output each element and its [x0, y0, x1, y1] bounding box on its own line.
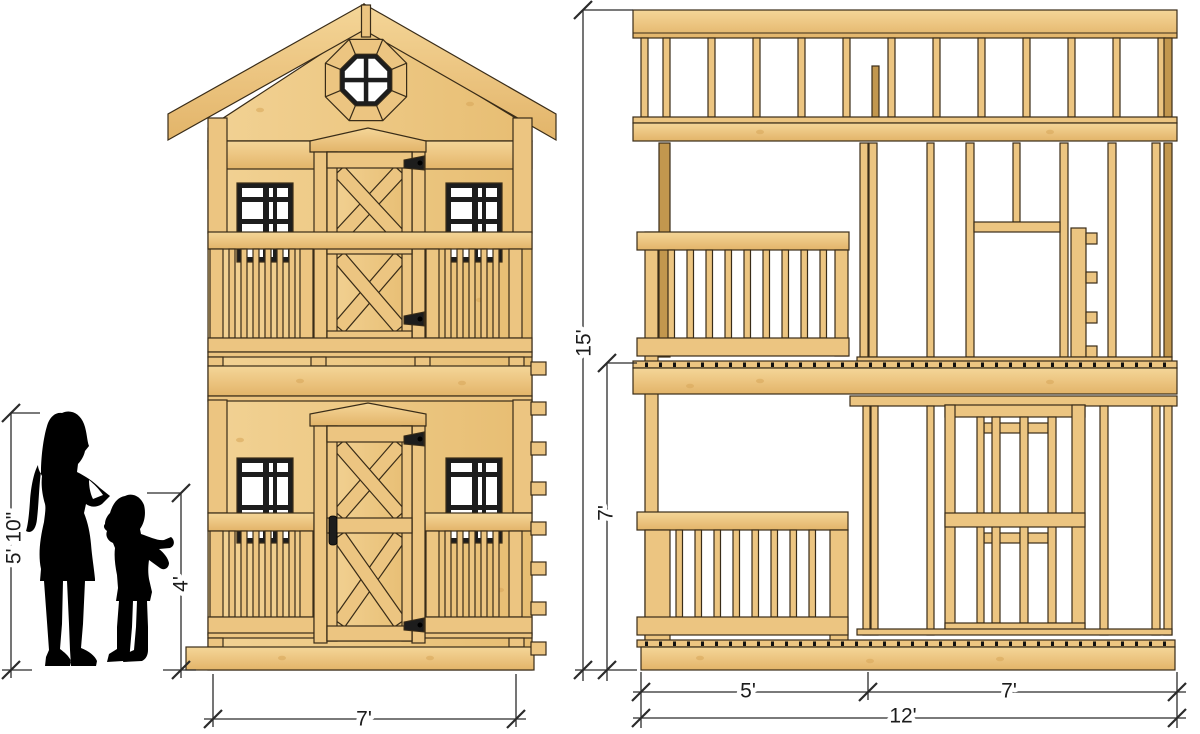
railing-baluster: [469, 249, 475, 338]
window-muntin: [451, 219, 497, 224]
loft-rail-stud: [708, 38, 715, 117]
wall-stud: [1164, 406, 1172, 635]
deck-board-joint: [1135, 363, 1138, 368]
porch-top-rail: [208, 513, 314, 531]
deck-board-joint: [855, 363, 858, 368]
window-muntin: [451, 197, 497, 202]
deck-board-joint: [1037, 642, 1040, 647]
porch-baluster: [752, 530, 759, 617]
wood-knot: [1046, 380, 1054, 385]
deck-board-joint: [813, 642, 816, 647]
window-muntin: [242, 219, 288, 224]
wood-knot: [686, 384, 694, 389]
railing-baluster: [445, 249, 451, 338]
railing-baluster: [493, 531, 499, 617]
base-block: [509, 638, 524, 647]
corner-trim: [513, 400, 532, 513]
deck-board-joint: [897, 642, 900, 647]
deck-board-joint: [799, 363, 802, 368]
porch-baluster: [771, 530, 778, 617]
wood-knot: [756, 379, 764, 384]
balcony-top-rail: [208, 232, 532, 249]
octagon-window-muntin: [344, 78, 388, 83]
child-silhouette: [104, 495, 174, 662]
floor-band-trim: [208, 396, 532, 401]
window-header-block: [984, 423, 1020, 433]
deck-board-joint: [1079, 363, 1082, 368]
railing-baluster: [493, 249, 499, 338]
deck-board-joint: [645, 642, 648, 647]
deck-board-joint: [869, 363, 872, 368]
wall-bottom-plate: [857, 629, 1172, 635]
deck-board-joint: [1065, 642, 1068, 647]
front-width-dimension: 7': [356, 708, 372, 731]
wall-stud: [1100, 406, 1108, 635]
deck-board-joint: [897, 363, 900, 368]
adult-height-dimension: 5' 10": [3, 512, 26, 564]
porch-baluster: [676, 530, 683, 617]
window-header-block: [1028, 423, 1048, 433]
railing-post: [300, 531, 313, 617]
deck-board-joint: [953, 363, 956, 368]
deck-board-joint: [743, 363, 746, 368]
door-jamb: [314, 426, 327, 643]
deck-board-joint: [715, 642, 718, 647]
wood-knot: [296, 379, 304, 384]
railing-baluster: [481, 531, 487, 617]
railing-baluster: [241, 531, 247, 617]
wall-stud: [1152, 143, 1160, 357]
deck-board-joint: [729, 363, 732, 368]
climbing-board: [1071, 228, 1086, 357]
total-depth-dimension: 12': [889, 705, 916, 728]
railing-baluster: [229, 249, 235, 338]
deck-board-joint: [729, 642, 732, 647]
window-muntin: [242, 505, 288, 510]
deck-board-joint: [1107, 642, 1110, 647]
balcony-baluster: [687, 250, 694, 338]
sill-block: [311, 357, 326, 366]
adult-silhouette: [26, 411, 110, 666]
ridge-board: [362, 5, 371, 37]
balcony-top-rail: [637, 232, 849, 250]
climbing-rock: [531, 522, 546, 535]
balcony-baluster: [668, 250, 675, 338]
window-muntin: [242, 197, 288, 202]
deck-board-joint: [757, 642, 760, 647]
wood-knot: [866, 659, 874, 664]
wood-knot: [1046, 130, 1054, 135]
deck-board-joint: [785, 642, 788, 647]
corner-trim: [208, 118, 227, 233]
side-total-height-dimension: 15': [573, 329, 596, 356]
porch-bottom-rail: [637, 617, 848, 635]
deck-board-joint: [1009, 642, 1012, 647]
sill-block: [208, 357, 223, 366]
deck-board-joint: [1163, 642, 1166, 647]
railing-baluster: [253, 249, 259, 338]
deck-board-joint: [1051, 642, 1054, 647]
railing-baluster: [457, 531, 463, 617]
railing-post: [300, 249, 313, 338]
window-muntin: [451, 505, 497, 510]
wood-knot: [278, 656, 286, 661]
loft-rim-band: [633, 123, 1177, 141]
door-jamb: [314, 152, 327, 348]
deck-board-joint: [1079, 642, 1082, 647]
deck-board-joint: [911, 363, 914, 368]
loft-rail-stud: [798, 38, 805, 117]
deck-board-joint: [1037, 363, 1040, 368]
deck-board-joint: [1051, 363, 1054, 368]
base-rail: [208, 633, 314, 638]
cripple-stud: [1013, 143, 1020, 222]
deck-board-joint: [701, 363, 704, 368]
window-mid-rail: [945, 513, 1085, 527]
deck-board-joint: [771, 642, 774, 647]
sill-block: [509, 357, 524, 366]
deck-board-joint: [771, 363, 774, 368]
deck-board-joint: [939, 642, 942, 647]
railing-baluster: [265, 249, 271, 338]
railing-baluster: [445, 531, 451, 617]
deck-board-joint: [827, 642, 830, 647]
sill-block: [415, 357, 430, 366]
deck-board-joint: [673, 363, 676, 368]
loft-rail-stud: [978, 38, 985, 117]
door-hinge-pin: [418, 623, 423, 628]
climbing-rock: [531, 562, 546, 575]
window-muntin: [242, 472, 288, 477]
wall-stud: [869, 143, 877, 357]
deck-board-joint: [841, 642, 844, 647]
climbing-rock: [531, 442, 546, 455]
deck-board-joint: [1023, 363, 1026, 368]
side-framing-view: [633, 10, 1177, 670]
railing-baluster: [229, 531, 235, 617]
deck-board-joint: [1121, 642, 1124, 647]
balcony-baluster: [725, 250, 732, 338]
railing-post: [426, 249, 439, 338]
door-hinge-pin: [418, 317, 423, 322]
wall-stud: [927, 143, 934, 357]
railing-post: [509, 531, 522, 617]
deck-board-joint: [883, 363, 886, 368]
loft-rail-stud: [1068, 38, 1075, 117]
loft-rail-stud: [753, 38, 760, 117]
deck-board-joint: [1093, 363, 1096, 368]
railing-baluster: [457, 249, 463, 338]
wall-stud: [927, 406, 934, 635]
deck-board-joint: [659, 363, 662, 368]
wood-knot: [236, 438, 244, 443]
loft-rail-stud: [1023, 38, 1030, 117]
railing-post: [210, 531, 223, 617]
playhouse-plan-drawing: 5' 10" 4' 7' 15' 7' 5' 7' 12': [0, 0, 1200, 734]
loft-rail-top-plate: [633, 10, 1177, 38]
deck-board-joint: [925, 363, 928, 368]
wall-stud: [863, 406, 870, 635]
deck-board-joint: [673, 642, 676, 647]
balcony-baluster: [706, 250, 713, 338]
porch-top-rail: [637, 512, 848, 530]
climbing-rock: [1086, 346, 1097, 357]
porch-baluster: [809, 530, 816, 617]
deck-board-joint: [911, 642, 914, 647]
wall-stud: [966, 143, 974, 357]
railing-baluster: [253, 531, 259, 617]
window-header-block: [984, 533, 1020, 543]
deck-board-joint: [953, 642, 956, 647]
deck-board-joint: [715, 363, 718, 368]
railing-post: [426, 531, 439, 617]
wood-knot: [426, 656, 434, 661]
foundation-band: [186, 647, 534, 670]
door-rail: [327, 626, 412, 641]
loft-rail-stud: [933, 38, 940, 117]
door-rail: [327, 518, 412, 533]
balcony-bottom-rail: [208, 338, 532, 352]
climbing-rock: [531, 642, 546, 655]
deck-board-joint: [1149, 642, 1152, 647]
deck-board-joint: [981, 642, 984, 647]
climbing-rock: [531, 602, 546, 615]
porch-baluster: [733, 530, 740, 617]
door-handle: [329, 516, 337, 545]
porch-baluster: [695, 530, 702, 617]
loft-rail-stud: [1113, 38, 1120, 117]
deck-board-joint: [799, 642, 802, 647]
wood-knot: [756, 130, 764, 135]
deck-board-joint: [757, 363, 760, 368]
balcony-baluster: [801, 250, 808, 338]
corner-trim: [513, 118, 532, 233]
wall-stud: [1060, 143, 1068, 357]
climbing-rock: [531, 362, 546, 375]
deck-board-joint: [995, 363, 998, 368]
door-rail: [327, 426, 412, 442]
deck-board-joint: [967, 642, 970, 647]
wall-stud: [871, 406, 878, 635]
railing-baluster: [289, 249, 295, 338]
deck-board-joint: [1093, 642, 1096, 647]
balcony-baluster: [763, 250, 770, 338]
railing-baluster: [277, 249, 283, 338]
deck-board-joint: [1149, 363, 1152, 368]
deck-board-joint: [1009, 363, 1012, 368]
deck-board-joint: [925, 642, 928, 647]
wood-knot: [996, 657, 1004, 662]
deck-board-joint: [645, 363, 648, 368]
balcony-bottom-rail: [637, 338, 849, 356]
railing-baluster: [277, 531, 283, 617]
door-rail: [327, 152, 412, 168]
wood-knot: [466, 102, 474, 107]
side-lower-height-dimension: 7': [595, 505, 618, 521]
corner-trim: [208, 400, 227, 513]
climbing-rock: [1086, 233, 1097, 244]
deck-board-joint: [813, 363, 816, 368]
climbing-rock: [1086, 312, 1097, 323]
deck-board-joint: [1107, 363, 1110, 368]
loft-rail-splice-stud: [872, 66, 879, 117]
front-elevation-view: [168, 4, 556, 670]
deck-board-joint: [841, 363, 844, 368]
skirt-band: [641, 647, 1175, 670]
deck-board-joint: [1135, 642, 1138, 647]
balcony-baluster: [744, 250, 751, 338]
climbing-rock: [1086, 272, 1097, 283]
porch-top-rail: [425, 513, 532, 531]
deck-board-joint: [883, 642, 886, 647]
window-header-block: [1028, 533, 1048, 543]
loft-rail-stud: [888, 38, 895, 117]
deck-board-joint: [1121, 363, 1124, 368]
porch-depth-dimension: 5': [740, 680, 756, 703]
deck-board-joint: [1163, 363, 1166, 368]
door-hinge-pin: [418, 437, 423, 442]
railing-baluster: [241, 249, 247, 338]
deck-board-joint: [995, 642, 998, 647]
floor-band: [208, 366, 532, 396]
base-rail: [425, 633, 532, 638]
sill-rail: [208, 352, 532, 357]
wall-stud: [860, 143, 868, 357]
wall-stud: [1108, 143, 1116, 357]
loft-rail-stud: [843, 38, 850, 117]
wall-end-stud: [1164, 143, 1172, 357]
deck-board-joint: [659, 642, 662, 647]
railing-baluster: [469, 531, 475, 617]
porch-bottom-rail: [208, 617, 314, 635]
porch-bottom-rail: [425, 617, 532, 635]
deck-board-joint: [1065, 363, 1068, 368]
deck-board-joint: [701, 642, 704, 647]
deck-board-joint: [687, 642, 690, 647]
climbing-rock: [531, 482, 546, 495]
loft-rail-stud: [663, 38, 670, 117]
door-hinge-pin: [418, 161, 423, 166]
deck-board-joint: [967, 363, 970, 368]
deck-board-joint: [869, 642, 872, 647]
loft-rail-end-stud: [1164, 38, 1172, 117]
deck-board-joint: [687, 363, 690, 368]
deck-board-joint: [981, 363, 984, 368]
window-header: [974, 222, 1060, 232]
window-muntin: [451, 472, 497, 477]
deck-board-joint: [827, 363, 830, 368]
railing-post: [509, 249, 522, 338]
interior-depth-dimension: 7': [1001, 680, 1017, 703]
loft-bottom-plate: [633, 117, 1177, 123]
deck-board-joint: [785, 363, 788, 368]
loft-rail-stud: [641, 38, 648, 117]
porch-baluster: [790, 530, 797, 617]
railing-post: [210, 249, 223, 338]
porch-baluster: [714, 530, 721, 617]
climbing-rock: [531, 402, 546, 415]
wood-knot: [696, 656, 704, 661]
balcony-baluster: [782, 250, 789, 338]
wood-knot: [256, 108, 264, 113]
deck-board-joint: [743, 642, 746, 647]
deck-rim-band: [633, 368, 1177, 394]
wall-stud: [1152, 406, 1160, 635]
railing-baluster: [481, 249, 487, 338]
deck-board-joint: [939, 363, 942, 368]
balcony-baluster: [820, 250, 827, 338]
child-height-dimension: 4': [170, 576, 193, 592]
deck-board-joint: [855, 642, 858, 647]
door-jamb: [412, 426, 425, 643]
railing-baluster: [289, 531, 295, 617]
window-top-plate: [945, 405, 1085, 417]
base-block: [208, 638, 223, 647]
scale-figures: [26, 411, 174, 666]
wood-knot: [458, 381, 466, 386]
deck-board-joint: [1023, 642, 1026, 647]
railing-baluster: [265, 531, 271, 617]
